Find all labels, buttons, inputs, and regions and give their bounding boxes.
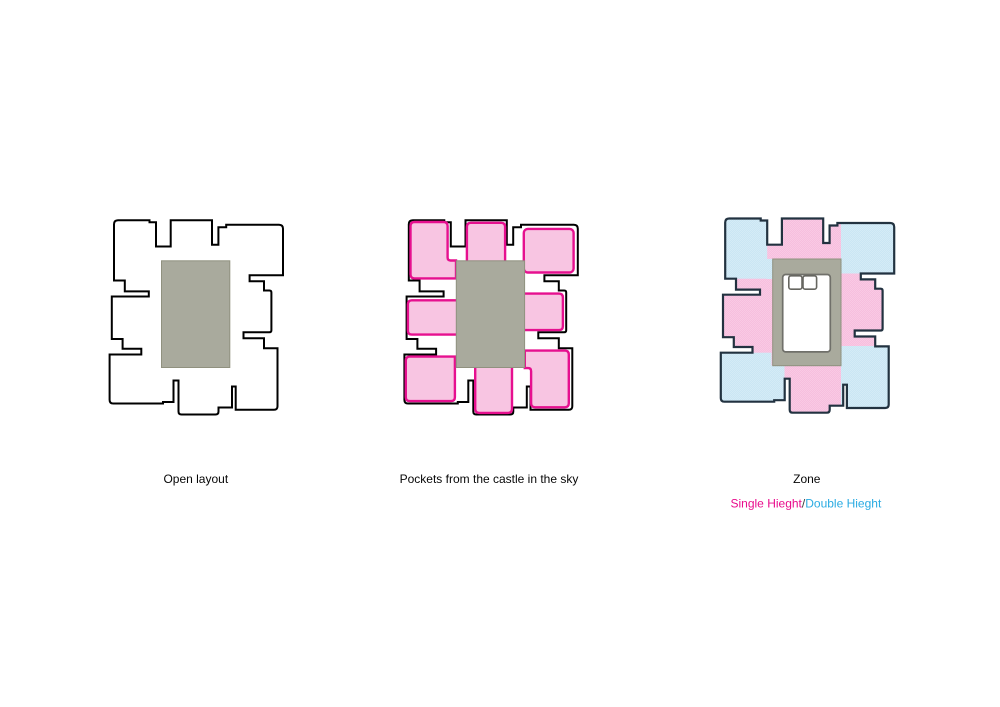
svg-text:Pockets from the castle in the: Pockets from the castle in the sky <box>400 472 579 486</box>
svg-text:Single Hieght/Double Hieght: Single Hieght/Double Hieght <box>731 496 882 510</box>
svg-text:Open layout: Open layout <box>163 472 228 486</box>
svg-text:Zone: Zone <box>793 472 821 486</box>
